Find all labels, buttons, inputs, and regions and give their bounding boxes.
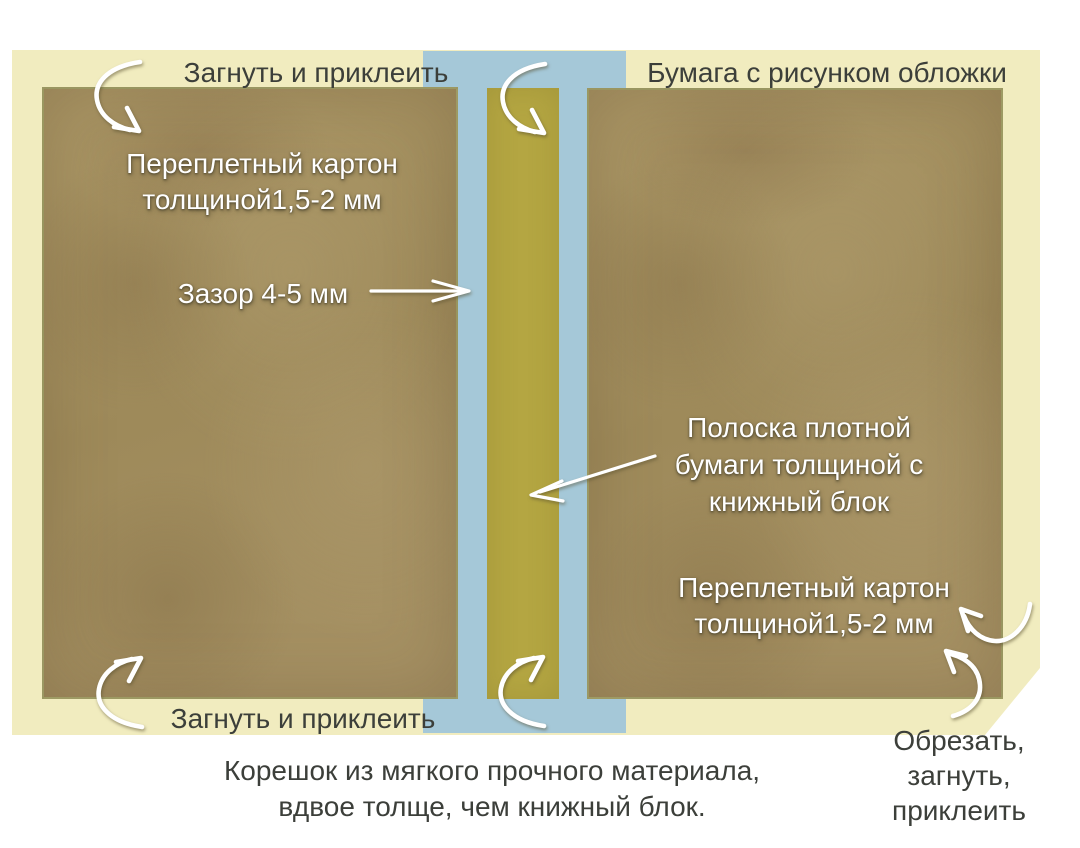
label-spine-strip-line2: бумаги толщиной с — [675, 446, 924, 483]
label-left-board-line2: толщиной1,5-2 мм — [126, 182, 398, 218]
label-fold-glue-top: Загнуть и приклеить — [184, 55, 449, 91]
label-left-board-line1: Переплетный картон — [126, 146, 398, 182]
label-spine-note: Корешок из мягкого прочного материала, в… — [224, 753, 760, 825]
label-cover-paper: Бумага с рисунком обложки — [647, 55, 1007, 91]
label-spine-note-line2: вдвое толще, чем книжный блок. — [224, 789, 760, 825]
label-spine-strip: Полоска плотной бумаги толщиной с книжны… — [675, 409, 924, 520]
label-right-board-line2: толщиной1,5-2 мм — [678, 606, 950, 642]
label-spine-strip-line1: Полоска плотной — [675, 409, 924, 446]
label-left-board: Переплетный картон толщиной1,5-2 мм — [126, 146, 398, 218]
label-fold-glue-bottom: Загнуть и приклеить — [171, 701, 436, 737]
label-right-board: Переплетный картон толщиной1,5-2 мм — [678, 570, 950, 642]
label-trim-fold-glue-line2: загнуть, — [892, 758, 1026, 793]
bookbinding-cover-diagram: Загнуть и приклеить Бумага с рисунком об… — [0, 0, 1080, 848]
label-trim-fold-glue-line3: приклеить — [892, 793, 1026, 828]
spine-paper-strip — [487, 88, 559, 699]
label-trim-fold-glue: Обрезать, загнуть, приклеить — [892, 723, 1026, 828]
label-trim-fold-glue-line1: Обрезать, — [892, 723, 1026, 758]
label-spine-strip-line3: книжный блок — [675, 483, 924, 520]
label-right-board-line1: Переплетный картон — [678, 570, 950, 606]
label-spine-note-line1: Корешок из мягкого прочного материала, — [224, 753, 760, 789]
label-gap: Зазор 4-5 мм — [178, 276, 348, 312]
